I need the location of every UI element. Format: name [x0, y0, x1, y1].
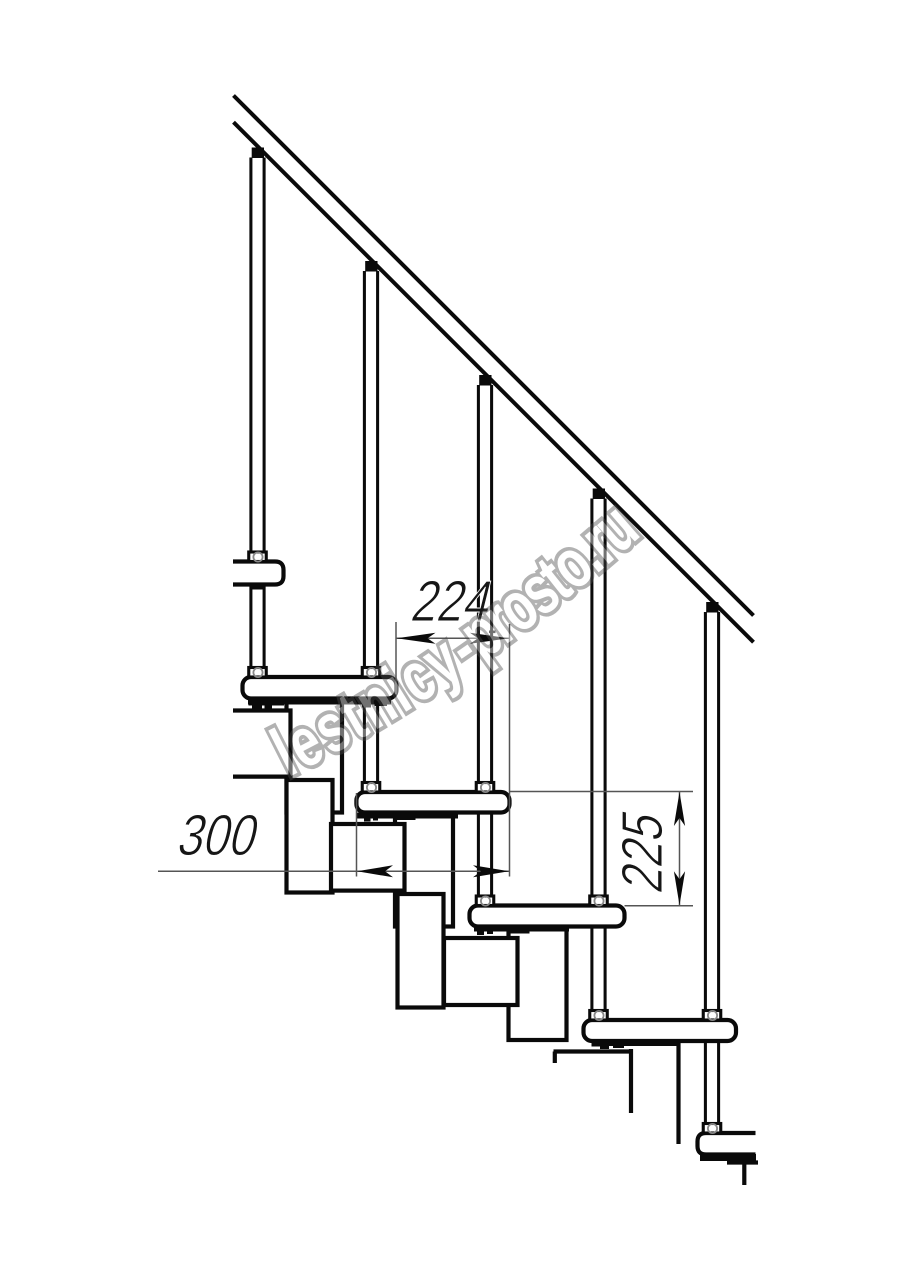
- svg-text:300: 300: [172, 804, 265, 868]
- svg-text:225: 225: [611, 805, 675, 898]
